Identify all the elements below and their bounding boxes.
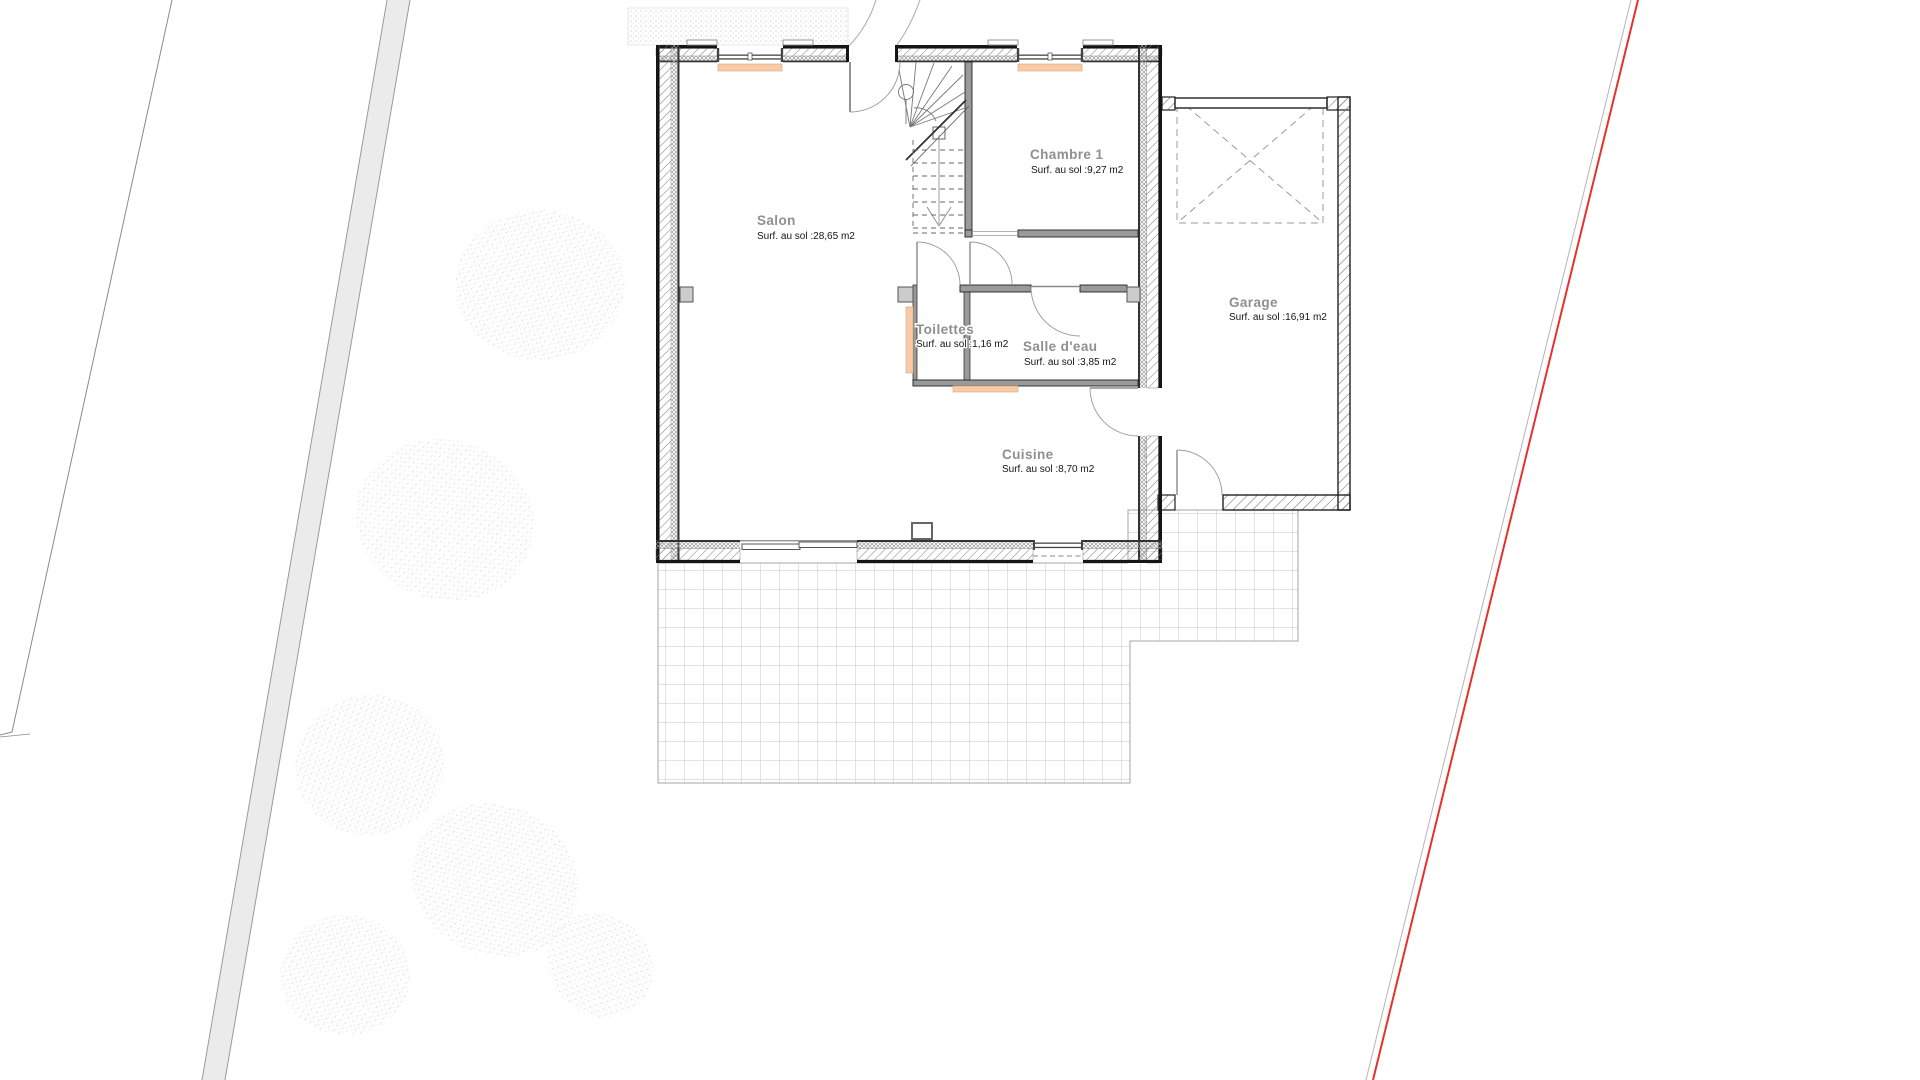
shutter-box bbox=[783, 40, 813, 45]
room-label-salon: Salon bbox=[757, 213, 796, 228]
garage-north-lintel bbox=[1175, 98, 1327, 108]
sliding-bay-south bbox=[740, 541, 857, 550]
parcel-boundary-left-line bbox=[0, 0, 172, 735]
window-chambre-north bbox=[1017, 48, 1083, 71]
wall-stairwell bbox=[965, 62, 972, 235]
wall-wc-north-b bbox=[1080, 285, 1127, 292]
wall-north bbox=[656, 45, 1162, 62]
pier bbox=[1127, 287, 1140, 302]
wall-chambre-south bbox=[1018, 230, 1138, 237]
shutter-box bbox=[988, 40, 1018, 45]
walkway-edge bbox=[849, 0, 876, 46]
room-label-chambre1: Chambre 1 bbox=[1030, 147, 1103, 162]
wall-south bbox=[656, 540, 1162, 563]
room-area-toilettes: Surf. au sol :1,16 m2 bbox=[916, 339, 1009, 350]
door-swing-arc bbox=[1090, 388, 1138, 436]
duct-block bbox=[912, 523, 932, 539]
room-label-salle-deau: Salle d'eau bbox=[1023, 339, 1097, 354]
shutter-box bbox=[687, 40, 717, 45]
parcel-boundary-red-line bbox=[1373, 0, 1638, 1080]
room-labels: Salon Surf. au sol :28,65 m2 Chambre 1 S… bbox=[757, 147, 1327, 475]
tree-texture bbox=[335, 416, 556, 624]
door-salle-deau bbox=[1031, 287, 1080, 337]
door-toilettes bbox=[917, 242, 960, 285]
parcel-boundary-gray-line bbox=[1366, 0, 1631, 1080]
room-label-toilettes: Toilettes bbox=[916, 322, 974, 337]
room-area-garage: Surf. au sol :16,91 m2 bbox=[1229, 312, 1327, 323]
tree-texture bbox=[280, 915, 410, 1035]
tree-texture bbox=[282, 681, 458, 849]
wall-east bbox=[1138, 45, 1162, 563]
tree-texture bbox=[455, 210, 625, 360]
window-cuisine-south bbox=[1033, 540, 1083, 556]
wall-bath-south bbox=[913, 380, 1138, 386]
staircase bbox=[899, 62, 970, 233]
radiator bbox=[718, 64, 782, 71]
room-area-chambre1: Surf. au sol :9,27 m2 bbox=[1031, 165, 1124, 176]
walkway-edge bbox=[896, 0, 920, 46]
front-door-swing-arc bbox=[850, 62, 900, 112]
room-label-cuisine: Cuisine bbox=[1002, 447, 1054, 462]
room-label-garage: Garage bbox=[1229, 295, 1278, 310]
garage-door-swing-arc bbox=[1177, 450, 1222, 495]
room-area-salon: Surf. au sol :28,65 m2 bbox=[757, 231, 855, 242]
site-features bbox=[0, 0, 1638, 1080]
stair-newel-post bbox=[899, 85, 914, 100]
garage-east-wall bbox=[1338, 97, 1350, 510]
pier bbox=[680, 287, 693, 302]
pier bbox=[898, 287, 913, 302]
shutter-box bbox=[1083, 40, 1113, 45]
front-door bbox=[846, 45, 900, 112]
radiator bbox=[906, 307, 913, 373]
window-salon-north bbox=[717, 48, 783, 71]
door-cuisine-east bbox=[1090, 388, 1145, 462]
floor-plan-drawing: Salon Surf. au sol :28,65 m2 Chambre 1 S… bbox=[0, 0, 1920, 1080]
parcel-boundary-left-tick bbox=[0, 734, 30, 737]
wall-chambre-south-junction bbox=[965, 230, 972, 237]
floor-plan-canvas: Salon Surf. au sol :28,65 m2 Chambre 1 S… bbox=[0, 0, 1920, 1080]
entrance-path-area bbox=[628, 8, 848, 45]
room-area-salle-deau: Surf. au sol :3,85 m2 bbox=[1024, 357, 1117, 368]
wall-wc-north bbox=[960, 285, 1031, 292]
garage-north-pier bbox=[1162, 97, 1175, 110]
room-area-cuisine: Surf. au sol :8,70 m2 bbox=[1002, 464, 1095, 475]
radiator bbox=[953, 386, 1018, 392]
garage-south-wall bbox=[1223, 495, 1350, 510]
openings bbox=[717, 45, 1145, 556]
door-chambre bbox=[970, 242, 1012, 284]
wall-west bbox=[656, 45, 680, 563]
radiator bbox=[1018, 64, 1082, 71]
